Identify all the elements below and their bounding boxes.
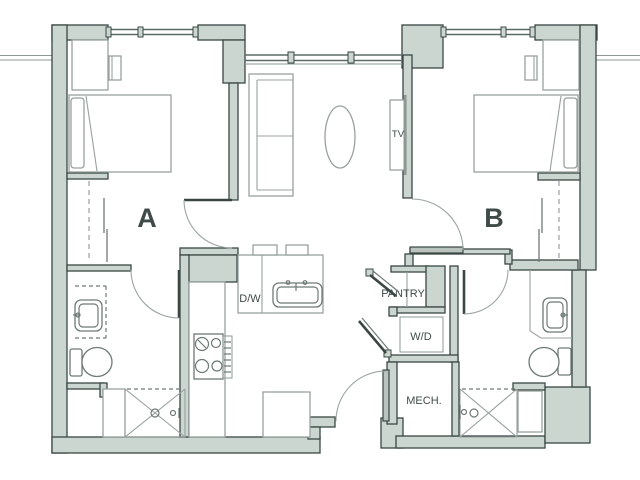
bedroom-a: A xyxy=(69,40,232,262)
desk-a xyxy=(72,40,121,90)
linen-closet-b xyxy=(518,391,542,432)
bedroom-a-label: A xyxy=(137,203,157,233)
island-sink xyxy=(273,281,322,307)
shower-a xyxy=(125,389,185,437)
shower-valve xyxy=(462,410,467,415)
desk-b xyxy=(525,40,579,90)
bedroom-a-window xyxy=(106,27,198,37)
laundry-door xyxy=(359,318,391,357)
bedroom-b-label: B xyxy=(484,203,504,233)
vanity-b xyxy=(530,270,572,338)
bar-stool xyxy=(253,245,277,255)
bed-b xyxy=(474,95,578,172)
closet-a xyxy=(89,181,107,262)
washer-dryer-label: W/D xyxy=(410,331,431,343)
bedroom-a-door xyxy=(184,200,232,248)
shower-b xyxy=(460,389,517,437)
bedroom-b-door xyxy=(410,199,463,253)
mech-label: MECH. xyxy=(406,395,441,407)
bedroom-b-window xyxy=(441,27,535,37)
linen-closet-a xyxy=(103,389,125,437)
coffee-table xyxy=(325,106,355,168)
kitchen-island: D/W xyxy=(238,245,323,313)
sink-a xyxy=(73,286,106,338)
bathroom-b-door xyxy=(464,270,508,314)
entry-door xyxy=(336,370,389,421)
pantry: PANTRY xyxy=(366,269,425,307)
shower-valve xyxy=(171,411,176,416)
dishwasher-label: D/W xyxy=(239,293,261,305)
shower-drain xyxy=(470,409,478,417)
living-room-window xyxy=(245,52,403,64)
toilet-b xyxy=(529,348,571,377)
bed-a xyxy=(69,95,171,172)
tv-unit: TV xyxy=(390,95,407,175)
refrigerator xyxy=(263,392,310,437)
bathroom-a-door xyxy=(131,270,179,318)
stove xyxy=(194,334,223,379)
bar-stool xyxy=(286,245,308,255)
sofa xyxy=(249,74,293,196)
bedroom-b: B xyxy=(410,40,579,262)
toilet-a xyxy=(70,348,112,377)
floor-plan: A B xyxy=(0,0,640,480)
bathroom-a xyxy=(70,270,185,437)
laundry-closet: W/D xyxy=(359,317,443,357)
tv-label: TV xyxy=(392,129,405,140)
closet-b xyxy=(539,181,559,262)
mech-room: MECH. xyxy=(406,395,441,407)
floor-plan-page: A B xyxy=(0,0,640,480)
living-room: TV xyxy=(249,74,407,196)
